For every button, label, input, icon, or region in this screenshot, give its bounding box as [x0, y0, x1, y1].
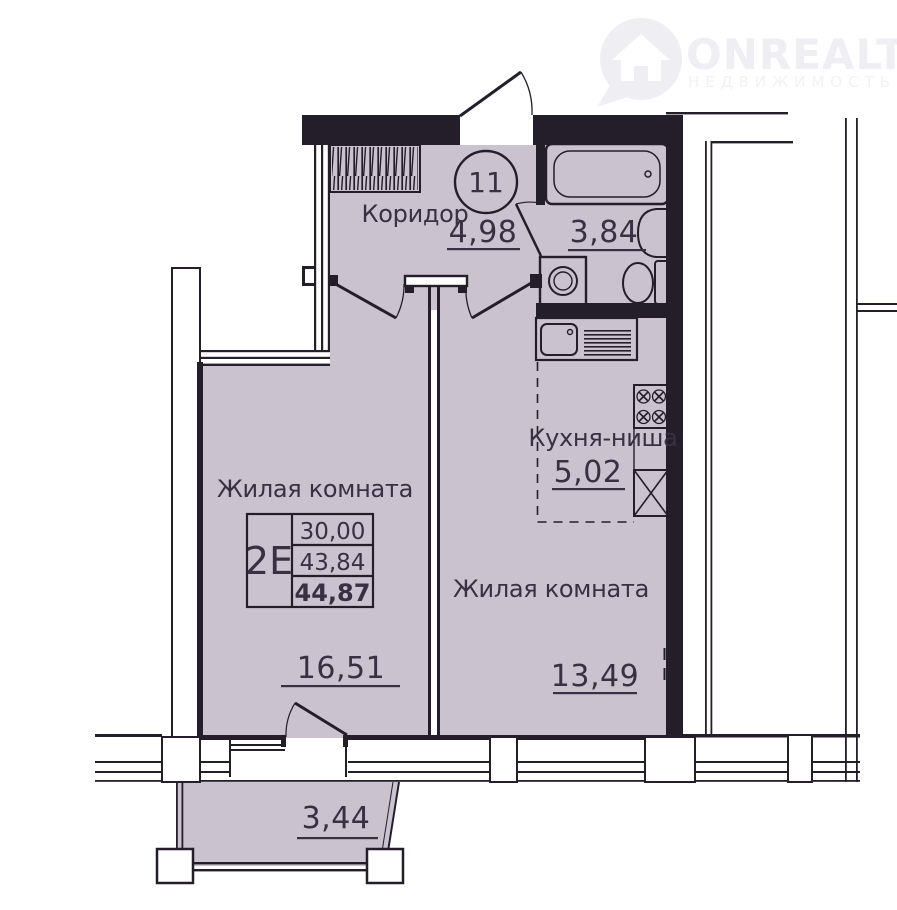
room1-area: 16,51	[297, 651, 385, 686]
watermark-brand: ONREALT	[686, 30, 897, 79]
kitchen-label: Кухня-ниша	[528, 424, 677, 452]
watermark: ONREALT НЕДВИЖИМОСТЬ	[597, 18, 897, 107]
entrance-door	[460, 72, 532, 116]
watermark-tagline: НЕДВИЖИМОСТЬ	[688, 73, 896, 91]
total-area-value: 44,87	[295, 579, 371, 607]
room1-label: Жилая комната	[217, 475, 413, 503]
floor-plan-page: ONREALT НЕДВИЖИМОСТЬ	[0, 0, 897, 910]
balcony-area: 3,44	[302, 801, 371, 836]
balcony-post	[157, 849, 193, 883]
living-area-value: 30,00	[300, 519, 366, 545]
apartment-type: 2Е	[245, 539, 293, 583]
balcony-post	[367, 849, 403, 883]
floor-plan: ONREALT НЕДВИЖИМОСТЬ	[0, 0, 897, 910]
apartment-number: 11	[468, 166, 504, 199]
room2-area: 13,49	[551, 659, 639, 694]
bathroom-area: 3,84	[570, 215, 639, 250]
floor-fill	[177, 145, 668, 866]
area-no-balcony-value: 43,84	[300, 550, 366, 576]
room2-label: Жилая комната	[453, 575, 649, 603]
wardrobe-icon	[330, 145, 420, 192]
window-lines	[95, 761, 860, 773]
kitchen-area: 5,02	[554, 455, 623, 490]
windows	[95, 734, 860, 782]
corridor-area: 4,98	[449, 215, 518, 250]
